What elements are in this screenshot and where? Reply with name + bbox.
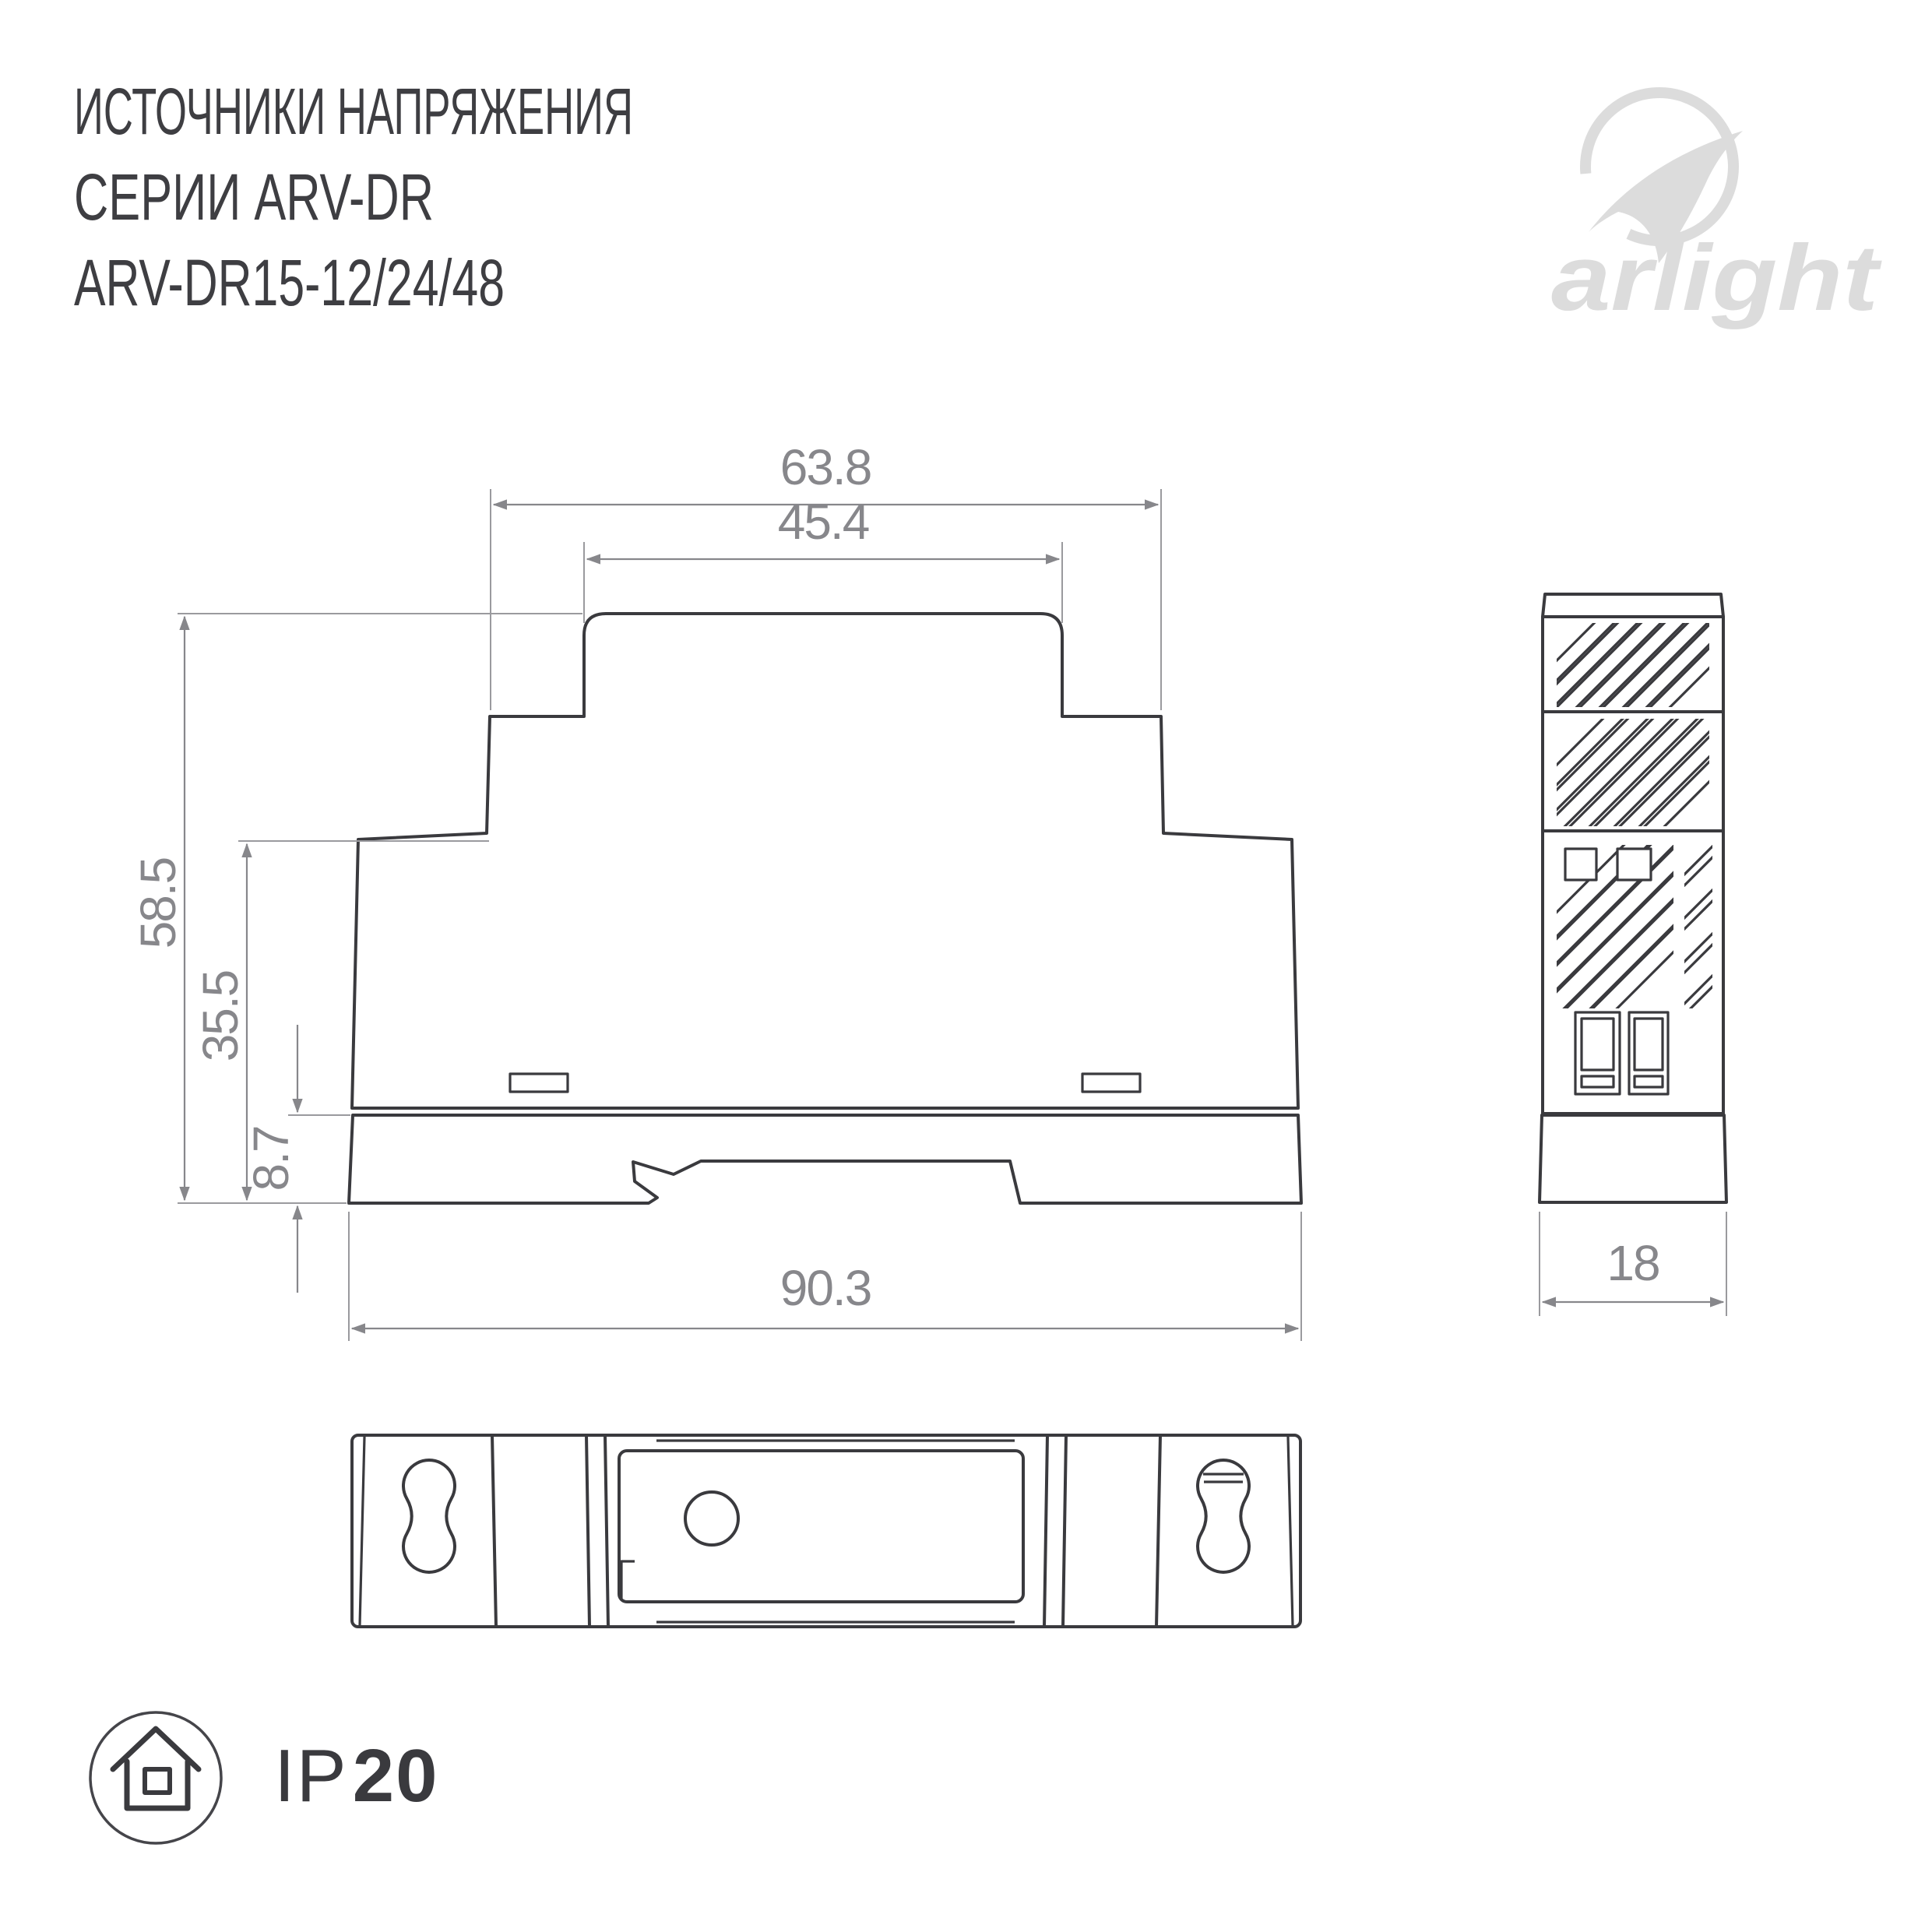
dimension-total-height: 58.5 xyxy=(130,858,186,949)
title-block: ИСТОЧНИКИ НАПРЯЖЕНИЯ СЕРИИ ARV-DR ARV-DR… xyxy=(74,75,633,319)
front-right-clip-slot xyxy=(1082,1074,1140,1092)
side-dimension: 18 xyxy=(1540,1212,1726,1316)
title-line-3: ARV-DR15-12/24/48 xyxy=(74,246,505,319)
bottom-seam-right-1 xyxy=(1156,1435,1160,1627)
ip-rating-text: IP20 xyxy=(274,1734,438,1818)
ip20-badge: IP20 xyxy=(90,1712,438,1843)
bottom-right-keyhole xyxy=(1198,1460,1249,1572)
bottom-seam-left-3 xyxy=(605,1435,608,1627)
page-root: ИСТОЧНИКИ НАПРЯЖЕНИЯ СЕРИИ ARV-DR ARV-DR… xyxy=(0,0,1932,1932)
dimension-top-width: 63.8 xyxy=(780,439,871,495)
side-terminal-block-2 xyxy=(1629,1012,1668,1094)
bottom-right-chamfer xyxy=(1288,1437,1293,1625)
title-line-2: СЕРИИ ARV-DR xyxy=(74,160,434,234)
technical-drawing-canvas: ИСТОЧНИКИ НАПРЯЖЕНИЯ СЕРИИ ARV-DR ARV-DR… xyxy=(0,0,1932,1932)
side-view-drawing: 18 xyxy=(1449,589,1796,1316)
bottom-left-keyhole xyxy=(403,1460,455,1572)
bottom-plate-notch xyxy=(621,1561,635,1599)
bottom-label-plate xyxy=(619,1451,1023,1602)
dimension-foot-height: 8.7 xyxy=(243,1127,299,1191)
logo-wordmark: arlight xyxy=(1551,226,1883,330)
bottom-center-hole xyxy=(685,1492,738,1545)
dimension-base-width: 90.3 xyxy=(780,1260,871,1316)
front-foot-outline xyxy=(349,1115,1301,1203)
dimension-cap-width: 45.4 xyxy=(778,494,869,550)
side-vent-notch-2 xyxy=(1617,849,1651,880)
side-terminal-block-1 xyxy=(1575,1012,1620,1094)
ip-rating-prefix: IP xyxy=(274,1734,348,1818)
bottom-left-chamfer xyxy=(360,1437,364,1625)
front-left-clip-slot xyxy=(510,1074,568,1092)
home-icon xyxy=(113,1729,199,1808)
side-vent-section-1 xyxy=(1486,589,1779,742)
dimension-body-height: 35.5 xyxy=(192,971,248,1062)
side-vent-small-column xyxy=(1679,846,1717,1014)
bottom-view-drawing xyxy=(352,1435,1300,1627)
side-vent-notch-1 xyxy=(1565,849,1596,880)
bottom-seam-right-2 xyxy=(1063,1435,1066,1627)
side-cap-outline xyxy=(1543,594,1723,617)
ip-rating-value: 20 xyxy=(353,1734,439,1818)
title-line-1: ИСТОЧНИКИ НАПРЯЖЕНИЯ xyxy=(74,75,633,148)
dimension-depth: 18 xyxy=(1606,1235,1659,1291)
front-dimensions: 63.8 45.4 58.5 35.5 8.7 90.3 xyxy=(130,439,1301,1341)
bottom-seam-left-1 xyxy=(492,1435,496,1627)
front-view-drawing: 63.8 45.4 58.5 35.5 8.7 90.3 xyxy=(130,439,1301,1341)
bottom-seam-right-3 xyxy=(1044,1435,1047,1627)
arlight-logo: arlight xyxy=(1551,86,1883,330)
front-body-outline xyxy=(352,614,1298,1108)
bottom-seam-left-2 xyxy=(586,1435,589,1627)
side-foot-outline xyxy=(1540,1115,1726,1202)
